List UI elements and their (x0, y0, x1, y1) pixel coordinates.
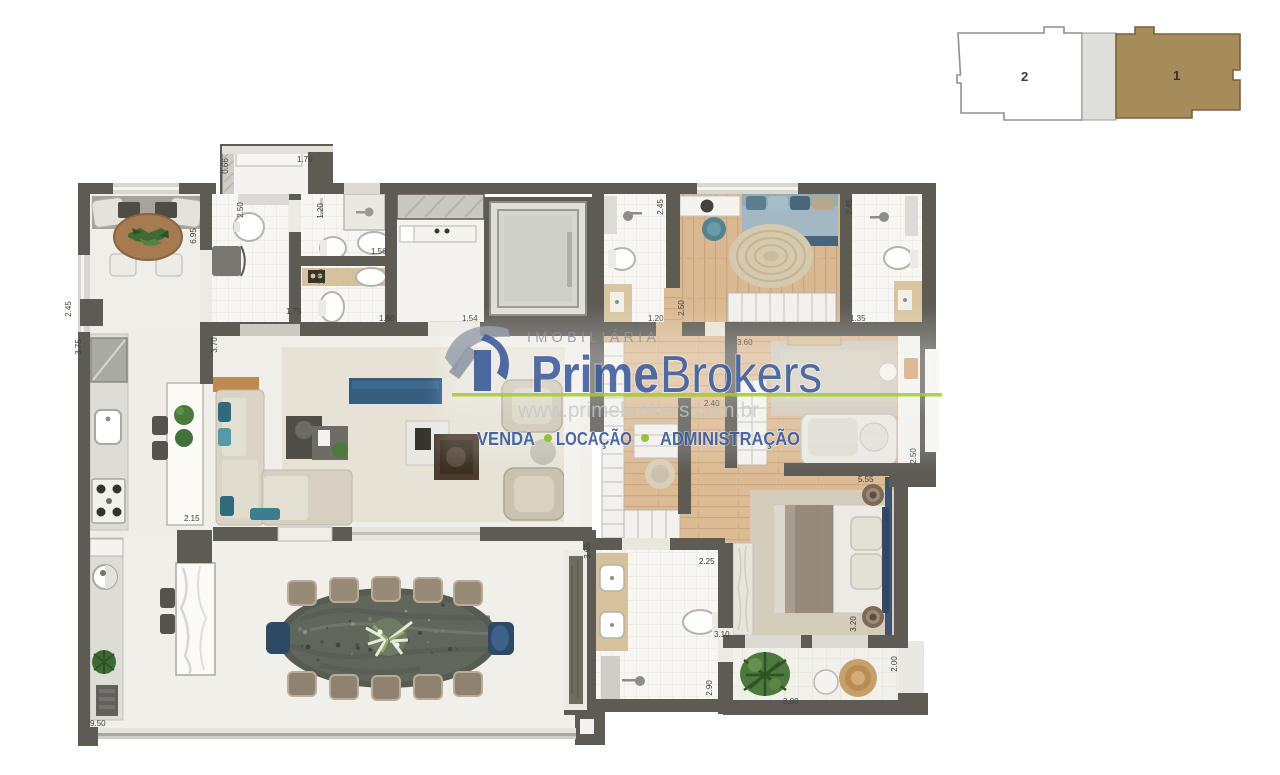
svg-text:1.56: 1.56 (371, 247, 387, 256)
svg-text:www.primebrokers.com.br: www.primebrokers.com.br (517, 399, 759, 422)
svg-text:2: 2 (1021, 69, 1028, 84)
svg-text:2.90: 2.90 (705, 680, 714, 696)
svg-text:3.20: 3.20 (849, 616, 858, 632)
svg-text:9.50: 9.50 (90, 719, 106, 728)
svg-text:1.10: 1.10 (317, 269, 326, 285)
svg-text:2.50: 2.50 (677, 300, 686, 316)
svg-text:3.70: 3.70 (210, 337, 219, 353)
svg-text:1.20: 1.20 (316, 203, 325, 219)
svg-text:LOCAÇÃO: LOCAÇÃO (556, 428, 632, 449)
svg-text:3.75: 3.75 (74, 339, 83, 355)
svg-text:6.95: 6.95 (189, 228, 198, 244)
svg-text:3.10: 3.10 (714, 630, 730, 639)
svg-text:1: 1 (1173, 68, 1180, 83)
svg-text:0.66: 0.66 (221, 158, 230, 174)
svg-text:1.60: 1.60 (379, 314, 395, 323)
svg-text:1.75: 1.75 (286, 307, 302, 316)
svg-text:5.55: 5.55 (858, 475, 874, 484)
svg-text:2.45: 2.45 (845, 199, 854, 215)
svg-text:1.70: 1.70 (297, 155, 313, 164)
svg-text:2.50: 2.50 (236, 202, 245, 218)
svg-text:2.15: 2.15 (184, 514, 200, 523)
svg-text:3.65: 3.65 (583, 543, 592, 559)
svg-text:IMOBILIÁRIA: IMOBILIÁRIA (527, 329, 660, 346)
svg-text:2.00: 2.00 (890, 656, 899, 672)
svg-text:ADMINISTRAÇÃO: ADMINISTRAÇÃO (660, 428, 800, 449)
svg-text:VENDA: VENDA (477, 428, 535, 449)
svg-text:2.25: 2.25 (699, 557, 715, 566)
svg-text:3.00: 3.00 (783, 697, 799, 706)
svg-text:2.45: 2.45 (656, 199, 665, 215)
svg-text:2.45: 2.45 (64, 301, 73, 317)
